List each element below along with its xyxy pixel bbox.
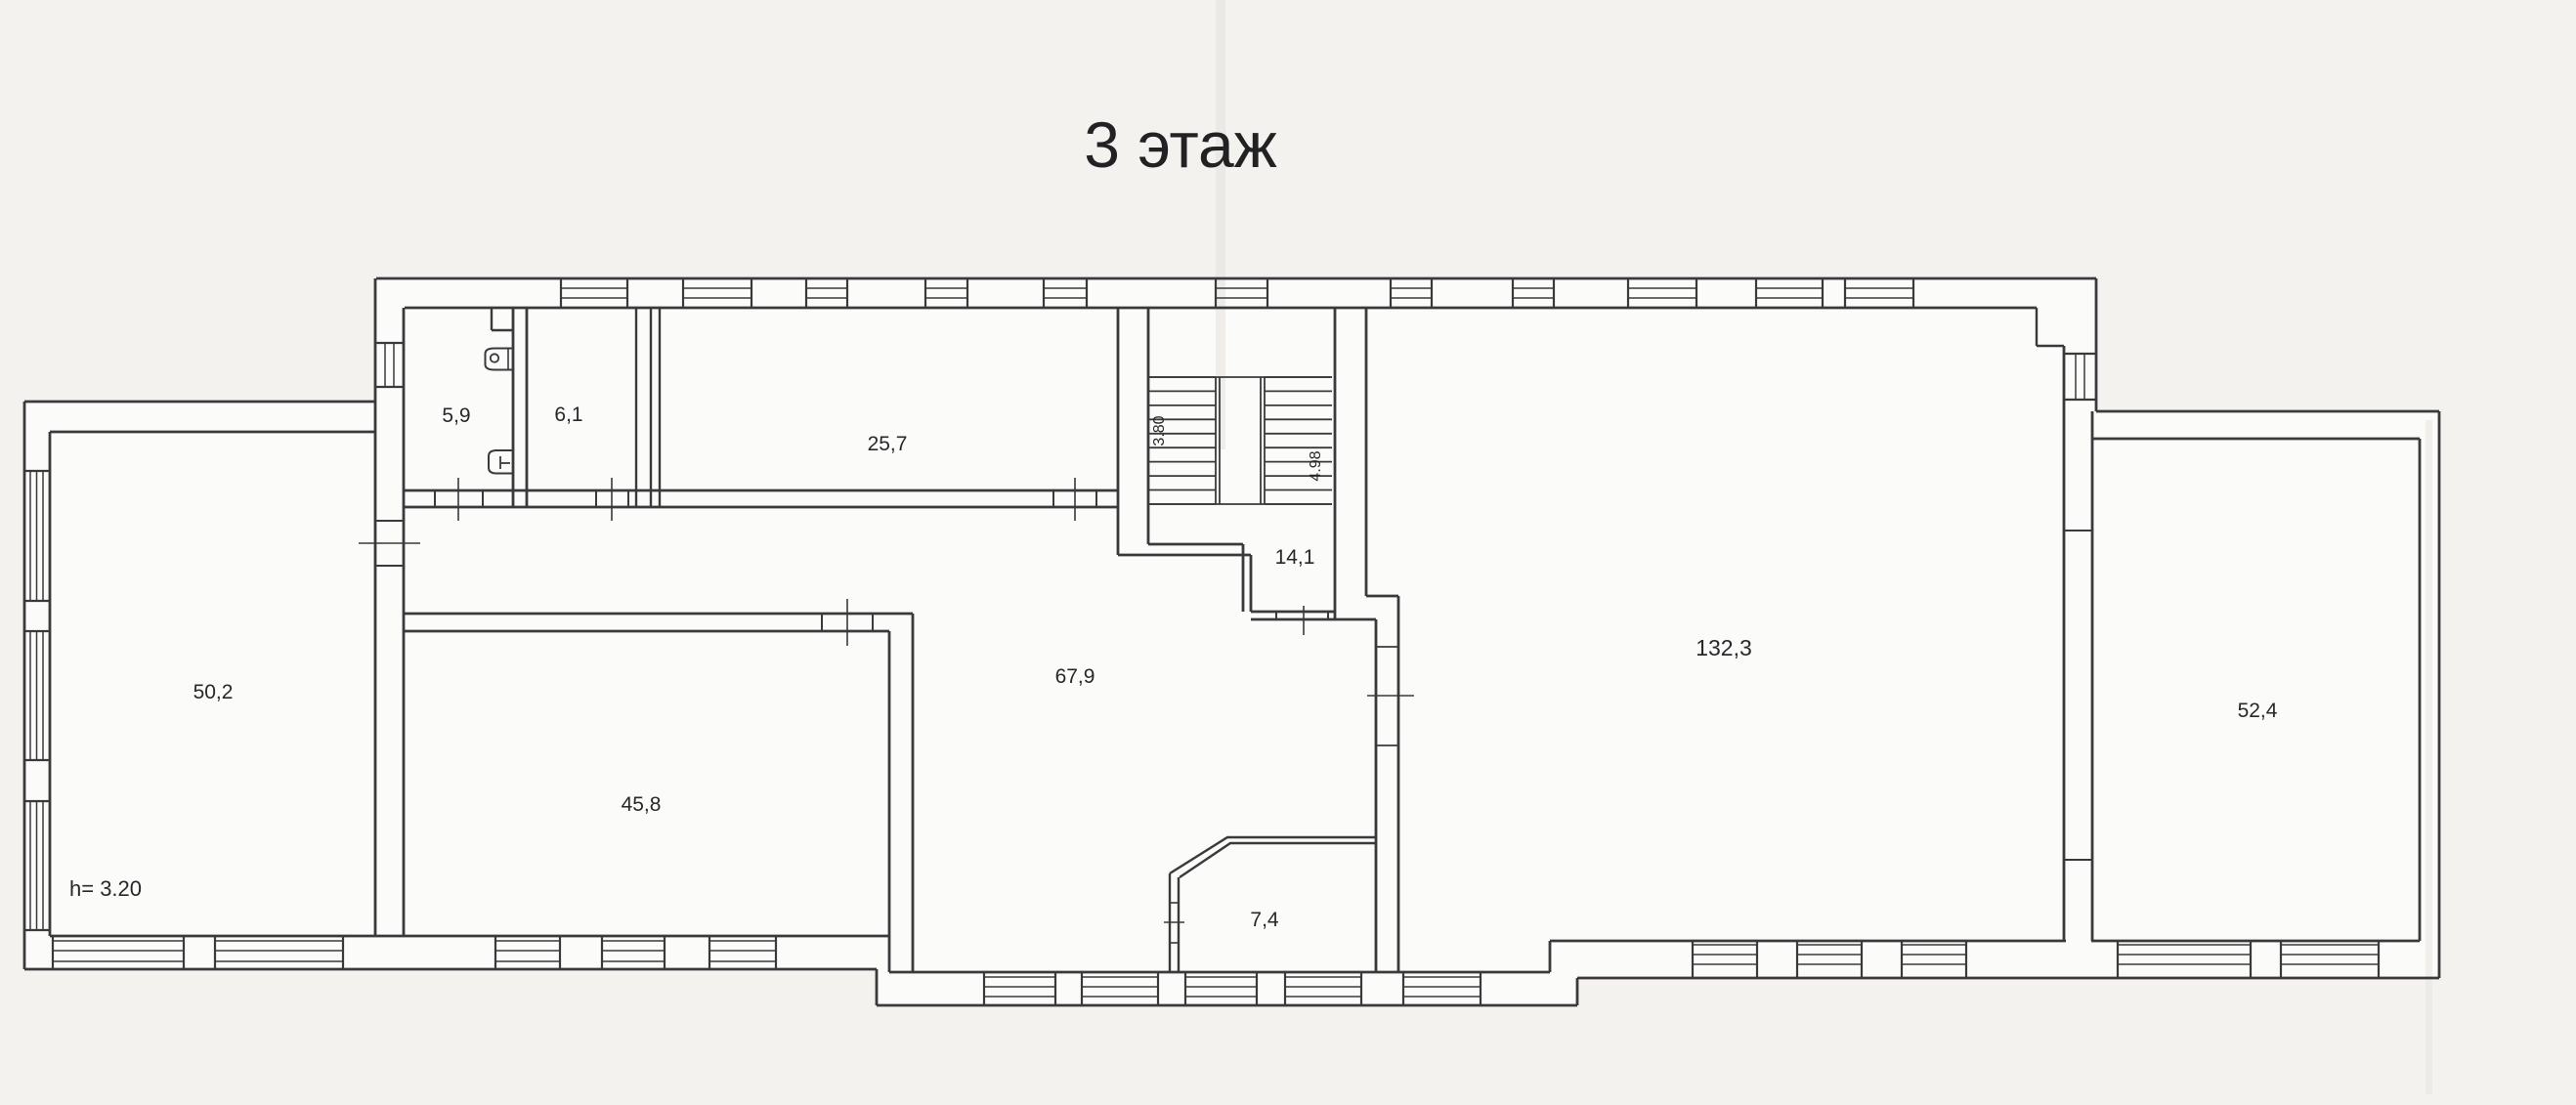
svg-text:4.98: 4.98 (1308, 450, 1324, 481)
svg-text:3 этаж: 3 этаж (1084, 108, 1277, 181)
svg-text:14,1: 14,1 (1275, 546, 1315, 569)
svg-text:25,7: 25,7 (868, 433, 908, 455)
svg-text:7,4: 7,4 (1250, 909, 1279, 931)
svg-text:5,9: 5,9 (442, 404, 470, 427)
svg-text:132,3: 132,3 (1696, 635, 1752, 660)
svg-text:6,1: 6,1 (554, 404, 582, 426)
svg-text:3.80: 3.80 (1151, 415, 1168, 446)
svg-text:67,9: 67,9 (1055, 665, 1095, 688)
svg-text:45,8: 45,8 (622, 793, 662, 816)
svg-text:h= 3.20: h= 3.20 (69, 876, 142, 901)
svg-text:52,4: 52,4 (2238, 700, 2278, 722)
svg-text:50,2: 50,2 (193, 681, 234, 703)
